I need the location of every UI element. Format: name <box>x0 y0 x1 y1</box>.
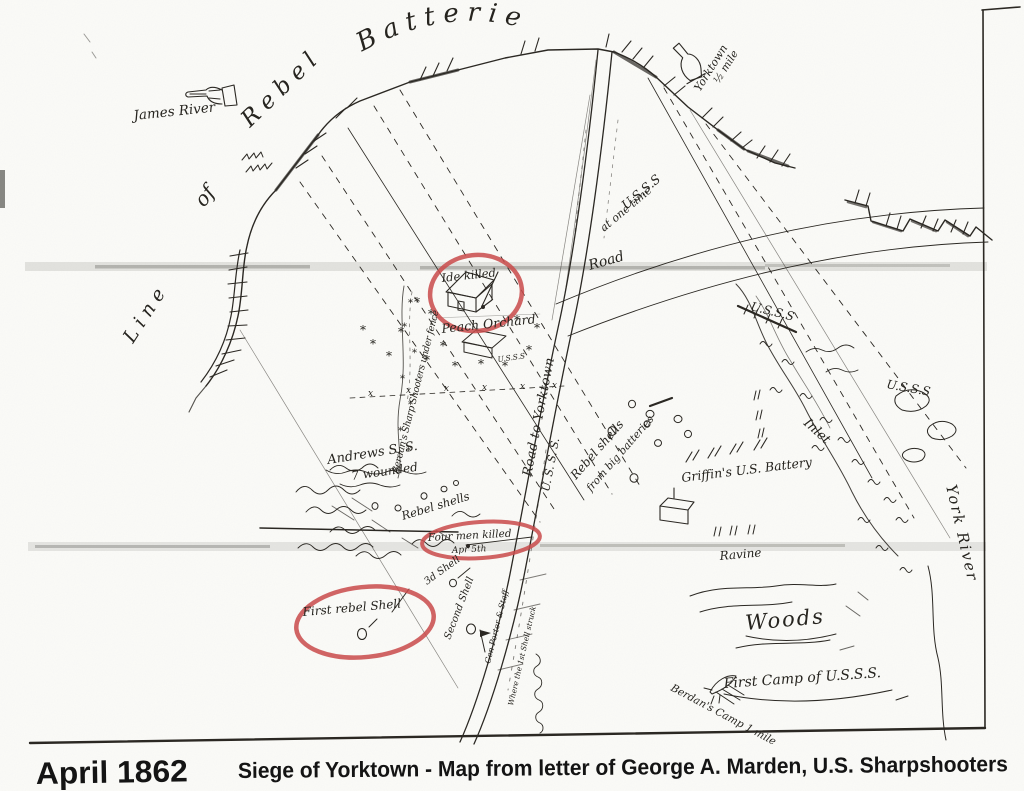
tree-mark-icon: * <box>452 359 458 373</box>
tree-mark-icon: * <box>440 339 446 353</box>
fence-mark-icon: x <box>482 383 487 393</box>
tree-mark-icon: * <box>386 349 392 363</box>
tree-mark-icon: * <box>414 295 420 309</box>
tree-mark-icon: * <box>526 343 532 357</box>
sharpshooter-mark-icon: * <box>402 322 407 333</box>
yorktown-map-svg: * * * * * * * * * * * * * * x x x x x x … <box>0 0 1024 791</box>
tree-mark-icon: * <box>360 323 366 337</box>
sharpshooter-mark-icon: * <box>408 298 413 309</box>
tree-mark-icon: * <box>478 357 484 371</box>
sharpshooter-mark-icon: * <box>412 348 417 359</box>
fence-mark-icon: x <box>444 384 449 394</box>
fence-mark-icon: x <box>368 389 373 399</box>
scanned-map-page: * * * * * * * * * * * * * * x x x x x x … <box>0 0 1024 791</box>
sharpshooter-mark-icon: * <box>400 374 405 385</box>
fence-mark-icon: x <box>520 382 525 392</box>
caption-date: April 1862 <box>36 753 189 791</box>
tree-mark-icon: * <box>370 337 376 351</box>
